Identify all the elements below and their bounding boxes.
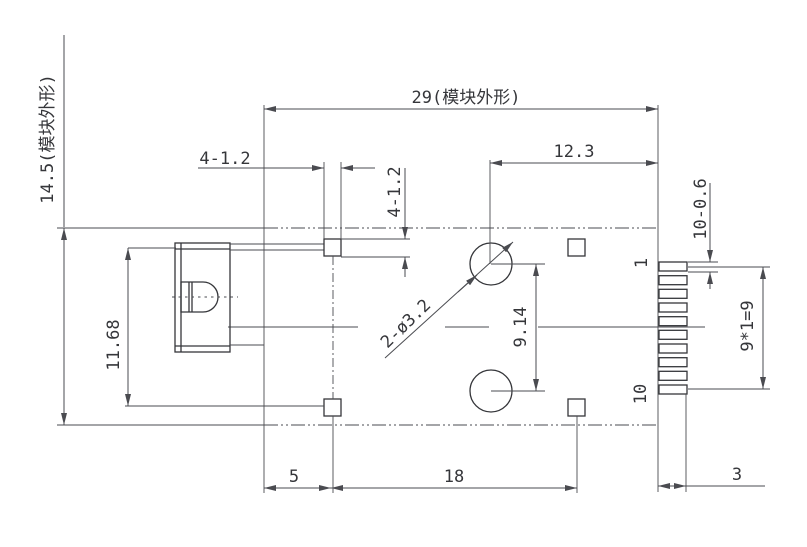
pin-5 <box>659 317 687 326</box>
connector-body <box>172 243 324 352</box>
pin-2 <box>659 276 687 285</box>
dim-module-height: 14.5(模块外形) <box>38 35 64 425</box>
dim-text-hole-diameter: 2-ø3.2 <box>377 295 435 352</box>
pin-3 <box>659 289 687 298</box>
pin-1 <box>659 262 687 271</box>
technical-drawing-canvas: 14.5(模块外形) 29(模块外形) 12.3 4-1.2 4-1.2 10-… <box>0 0 807 547</box>
dim-pad-height: 4-1.2 <box>341 166 410 277</box>
dim-text-hole-to-edge: 12.3 <box>554 142 595 162</box>
dim-hole-to-edge: 12.3 <box>490 142 658 264</box>
pad-bottom-left <box>324 399 341 416</box>
pin-6 <box>659 330 687 339</box>
pin-row <box>659 262 687 492</box>
pin-1-label: 1 <box>632 258 652 268</box>
dim-pin-span: 9*1=9 <box>688 267 770 389</box>
dim-bottom-row: 5 18 3 <box>264 416 765 493</box>
pin-4 <box>659 303 687 312</box>
pin-10 <box>659 385 687 394</box>
dim-text-pad-spacing: 18 <box>444 467 464 487</box>
dim-pad-width: 4-1.2 <box>198 149 375 239</box>
dim-text-pad-left-offset: 5 <box>289 467 299 487</box>
dim-pin-size: 10-0.6 <box>688 178 718 289</box>
pin-labels: 1 10 <box>631 258 652 404</box>
leader-arrow <box>458 275 477 292</box>
dim-text-pin-span: 9*1=9 <box>738 300 758 351</box>
dim-text-tab-width: 3 <box>732 465 742 485</box>
dim-text-pad-width: 4-1.2 <box>199 149 250 169</box>
dim-text-hole-spacing: 9.14 <box>511 307 531 348</box>
dim-text-pad-height: 4-1.2 <box>385 166 405 217</box>
dim-text-module-height: 14.5(模块外形) <box>38 74 58 203</box>
dim-text-left-span: 11.68 <box>104 319 124 370</box>
dim-module-width: 29(模块外形) <box>264 88 658 109</box>
pin-9 <box>659 371 687 380</box>
dim-hole-diameter: 2-ø3.2 <box>377 242 513 358</box>
connector-outer-rect <box>175 243 230 352</box>
dim-text-module-width: 29(模块外形) <box>412 88 521 108</box>
dim-text-pin-size: 10-0.6 <box>691 178 711 239</box>
dimension-drawing: 14.5(模块外形) 29(模块外形) 12.3 4-1.2 4-1.2 10-… <box>0 0 807 547</box>
pin-8 <box>659 358 687 367</box>
pad-bottom-right <box>568 399 585 416</box>
pad-top-left <box>324 239 341 256</box>
leader-line <box>385 242 513 358</box>
pin-7 <box>659 344 687 353</box>
pin-10-label: 10 <box>631 384 651 404</box>
pad-top-right <box>568 239 585 256</box>
